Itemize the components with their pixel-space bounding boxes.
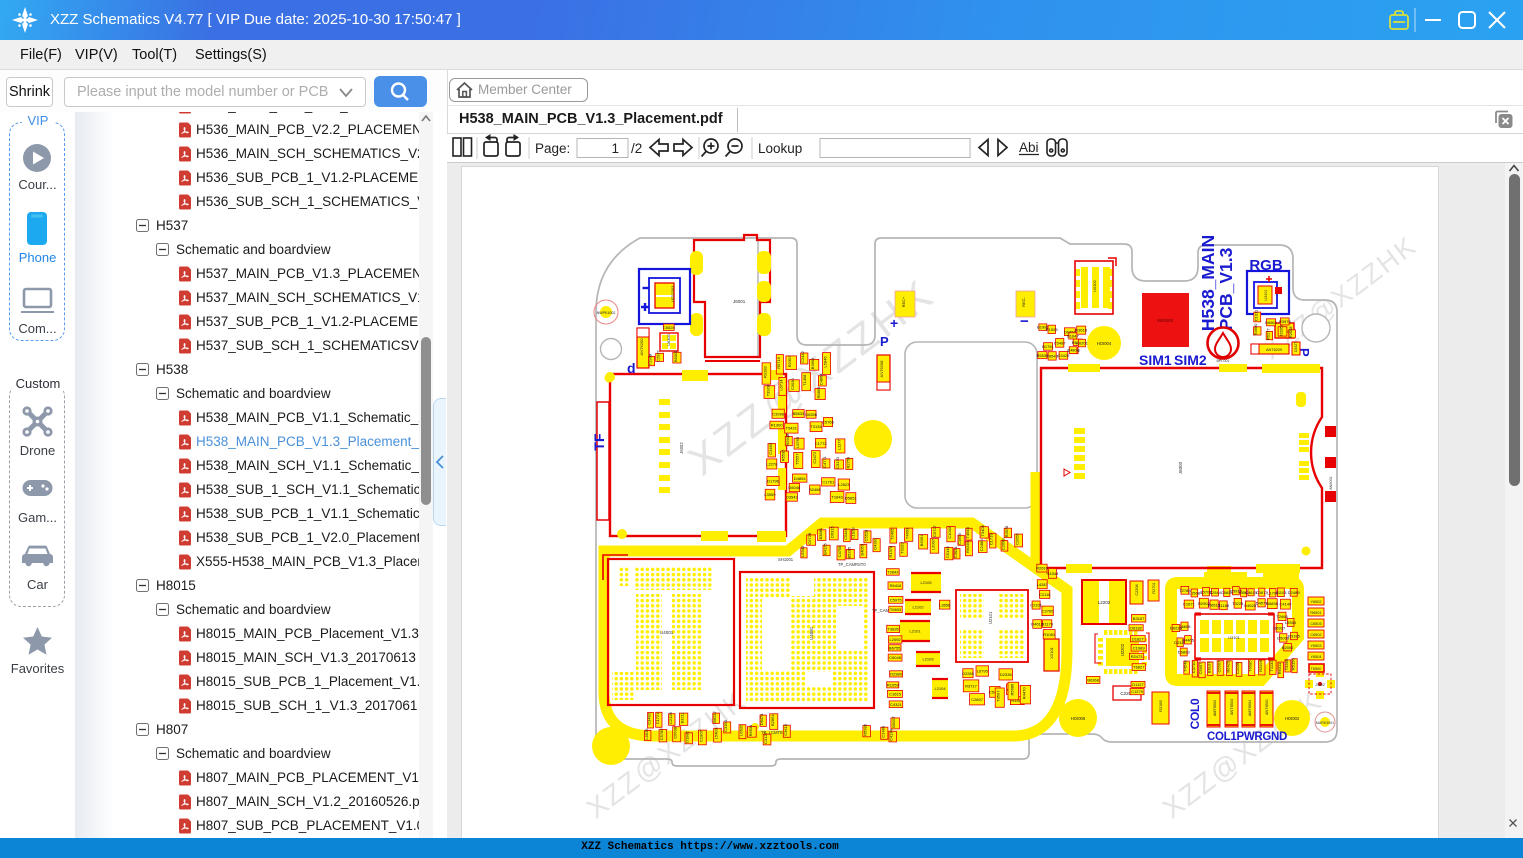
- svg-text:L2102: L2102: [912, 605, 924, 610]
- svg-text:R5277: R5277: [1265, 327, 1270, 340]
- svg-text:B6368: B6368: [1087, 678, 1099, 683]
- svg-text:C6048: C6048: [889, 655, 902, 660]
- svg-text:AN6001: AN6001: [1329, 476, 1333, 490]
- svg-text:R5716: R5716: [776, 356, 781, 369]
- svg-text:T3365: T3365: [1284, 658, 1289, 670]
- svg-text:P: P: [880, 334, 889, 349]
- svg-text:B5285: B5285: [846, 546, 851, 558]
- svg-text:D6048: D6048: [788, 485, 801, 490]
- svg-text:T6603: T6603: [890, 607, 902, 612]
- svg-text:B5057: B5057: [891, 715, 896, 727]
- svg-text:B5833: B5833: [793, 411, 805, 416]
- svg-text:D1796: D1796: [767, 479, 780, 484]
- svg-text:T1643: T1643: [831, 495, 843, 500]
- svg-text:R2616: R2616: [1036, 566, 1049, 571]
- svg-text:R1179: R1179: [1041, 621, 1053, 626]
- svg-text:Page:: Page:: [535, 141, 570, 156]
- svg-text:L6632: L6632: [738, 724, 743, 736]
- svg-text:R1378: R1378: [888, 545, 893, 558]
- svg-text:R1300: R1300: [771, 423, 784, 428]
- svg-text:C1615: C1615: [889, 692, 902, 697]
- svg-text:C2699: C2699: [1000, 538, 1005, 551]
- svg-text:R6425: R6425: [1225, 660, 1230, 673]
- svg-text:R3717: R3717: [965, 683, 978, 688]
- svg-text:T3103: T3103: [900, 542, 905, 554]
- svg-text:D2489: D2489: [1288, 590, 1301, 595]
- svg-text:R2759: R2759: [845, 456, 850, 469]
- svg-text:C6638: C6638: [673, 726, 678, 739]
- svg-text:U2101: U2101: [988, 611, 993, 624]
- svg-text:D6662: D6662: [1265, 320, 1278, 325]
- svg-text:U6305: U6305: [667, 334, 671, 345]
- svg-text:L2092: L2092: [890, 637, 902, 642]
- svg-text:L6795: L6795: [977, 669, 989, 674]
- svg-text:T2664: T2664: [1276, 614, 1288, 619]
- svg-text:R2307: R2307: [787, 355, 792, 368]
- svg-text:ANT6501: ANT6501: [1265, 699, 1269, 715]
- svg-text:T4548: T4548: [1183, 660, 1188, 672]
- svg-text:C3170: C3170: [835, 456, 840, 469]
- svg-text:C3127: C3127: [763, 731, 768, 744]
- svg-text:C3615: C3615: [783, 723, 788, 736]
- svg-text:C1489: C1489: [880, 725, 885, 738]
- svg-text:AMT6504: AMT6504: [1248, 700, 1252, 716]
- svg-text:C5957: C5957: [1198, 662, 1203, 675]
- svg-text:R1505: R1505: [1046, 327, 1059, 332]
- svg-text:T3507: T3507: [996, 690, 1001, 702]
- svg-text:C2101: C2101: [1030, 603, 1043, 608]
- svg-text:C1043: C1043: [947, 526, 952, 539]
- svg-text:D6182: D6182: [1130, 625, 1143, 630]
- svg-text:Y6504: Y6504: [1311, 655, 1322, 659]
- svg-text:D1127: D1127: [1132, 682, 1144, 687]
- svg-text:T3403: T3403: [980, 524, 985, 536]
- svg-text:L1794: L1794: [1267, 590, 1279, 595]
- svg-text:ANT6208: ANT6208: [879, 360, 884, 378]
- svg-text:T2405: T2405: [889, 528, 894, 540]
- svg-text:C6201: C6201: [1076, 341, 1089, 346]
- svg-text:B6836: B6836: [1266, 601, 1278, 606]
- svg-text:U4081: U4081: [809, 626, 814, 640]
- svg-text:R1059: R1059: [887, 682, 900, 687]
- svg-text:C6728: C6728: [807, 532, 812, 545]
- svg-text:R3900: R3900: [1253, 323, 1258, 336]
- svg-text:U5302: U5302: [1092, 279, 1097, 292]
- svg-text:L5554: L5554: [1285, 620, 1297, 625]
- svg-text:B6107: B6107: [1206, 661, 1211, 673]
- svg-text:L2105: L2105: [920, 580, 932, 585]
- svg-text:BPI-001: BPI-001: [1217, 359, 1230, 363]
- svg-text:B3906: B3906: [810, 357, 815, 369]
- svg-text:R4470: R4470: [1021, 687, 1026, 700]
- svg-text:C3492: C3492: [647, 712, 652, 725]
- svg-text:D4854: D4854: [794, 476, 807, 481]
- svg-text:C4610: C4610: [1245, 590, 1258, 595]
- svg-text:T6827: T6827: [1133, 665, 1145, 670]
- svg-text:T3134: T3134: [810, 424, 822, 429]
- svg-text:L5846: L5846: [823, 356, 828, 368]
- svg-text:TF: TF: [591, 433, 607, 451]
- svg-text:L2101: L2101: [909, 629, 921, 634]
- svg-text:R4465: R4465: [1182, 637, 1195, 642]
- svg-text:J6001: J6001: [733, 299, 746, 304]
- svg-text:L6714: L6714: [779, 379, 784, 391]
- svg-text:C4804: C4804: [1067, 348, 1080, 353]
- svg-text:J6002: J6002: [679, 442, 684, 454]
- svg-text:C1721: C1721: [655, 712, 660, 725]
- svg-text:B2854: B2854: [770, 714, 775, 726]
- svg-text:ANT6209: ANT6209: [1266, 348, 1282, 352]
- svg-text:Abi: Abi: [1019, 140, 1039, 155]
- svg-text:B3881: B3881: [818, 527, 823, 539]
- svg-text:Lookup: Lookup: [758, 141, 802, 156]
- svg-text:HOI002: HOI002: [1285, 716, 1300, 721]
- svg-text:C1907: C1907: [698, 729, 703, 742]
- svg-text:L2007: L2007: [930, 538, 935, 550]
- svg-text:R5853: R5853: [816, 386, 821, 399]
- svg-text:T2788: T2788: [1179, 588, 1191, 593]
- svg-text:L5702: L5702: [1200, 589, 1212, 594]
- svg-text:R2701: R2701: [1152, 582, 1156, 593]
- svg-text:D1827: D1827: [1132, 636, 1145, 641]
- svg-text:L2104: L2104: [934, 686, 946, 691]
- svg-text:L1568: L1568: [1189, 591, 1201, 596]
- svg-text:C5567: C5567: [1217, 660, 1222, 673]
- svg-text:L2623: L2623: [838, 482, 850, 487]
- svg-text:C3030: C3030: [790, 378, 795, 391]
- svg-text:B2466: B2466: [809, 487, 821, 492]
- svg-text:TP_CAMRST0: TP_CAMRST0: [838, 562, 866, 567]
- svg-text:C3420: C3420: [1058, 353, 1071, 358]
- svg-text:L4287: L4287: [1037, 582, 1049, 587]
- svg-text:U4001: U4001: [660, 630, 674, 635]
- svg-text:C5427: C5427: [1294, 342, 1298, 352]
- svg-text:C1719: C1719: [989, 533, 994, 546]
- svg-text:J6003: J6003: [1178, 461, 1183, 474]
- svg-text:U3101: U3101: [1228, 635, 1241, 640]
- svg-text:C3472: C3472: [812, 451, 817, 464]
- svg-text:L2278: L2278: [766, 462, 778, 467]
- svg-text:C2480: C2480: [979, 539, 984, 552]
- svg-text:C2657: C2657: [971, 697, 984, 702]
- svg-text:R6346: R6346: [965, 540, 970, 553]
- svg-text:C2116: C2116: [1039, 592, 1051, 597]
- svg-text:R2473: R2473: [1131, 654, 1144, 659]
- svg-text:REC-: REC-: [1021, 296, 1026, 306]
- svg-text:T6500: T6500: [1311, 667, 1322, 671]
- svg-text:C5727: C5727: [932, 524, 937, 537]
- svg-text:C5912: C5912: [1230, 588, 1243, 593]
- svg-text:C1761: C1761: [822, 480, 835, 485]
- svg-text:T5557: T5557: [794, 453, 799, 465]
- svg-text:R6416: R6416: [890, 583, 903, 588]
- svg-text:R2908: R2908: [785, 433, 790, 446]
- svg-text:D6356: D6356: [805, 412, 818, 417]
- svg-text:R4344: R4344: [1047, 571, 1060, 576]
- svg-text:B6755: B6755: [889, 645, 901, 650]
- svg-text:T2843: T2843: [887, 570, 899, 575]
- svg-text:R2285: R2285: [1158, 699, 1163, 712]
- svg-text:COL0: COL0: [1188, 698, 1202, 729]
- svg-text:1: 1: [611, 141, 619, 156]
- svg-text:R3183: R3183: [763, 365, 768, 378]
- svg-text:C6502: C6502: [1310, 633, 1321, 637]
- svg-text:D1647: D1647: [1067, 334, 1080, 339]
- svg-text:L5403: L5403: [714, 727, 719, 739]
- svg-text:HOI005: HOI005: [1071, 716, 1086, 721]
- svg-text:R2058: R2058: [1288, 326, 1293, 339]
- svg-text:T5421: T5421: [786, 426, 798, 431]
- svg-text:C1011: C1011: [1253, 309, 1258, 321]
- svg-text:C5975: C5975: [890, 597, 903, 602]
- svg-text:C5446: C5446: [843, 527, 848, 540]
- svg-text:T3225: T3225: [1232, 601, 1244, 606]
- svg-text:T6585: T6585: [1248, 660, 1253, 672]
- svg-text:B6391: B6391: [919, 534, 924, 546]
- svg-text:ANT6200: ANT6200: [639, 338, 644, 356]
- svg-text:SW1002: SW1002: [1157, 318, 1174, 323]
- svg-text:D1982: D1982: [685, 730, 690, 743]
- svg-text:L1928: L1928: [851, 527, 856, 539]
- svg-text:C2055: C2055: [1015, 532, 1020, 545]
- svg-text:C5785: C5785: [659, 728, 664, 741]
- svg-text:C2128: C2128: [668, 711, 673, 724]
- svg-text:L5769: L5769: [795, 436, 800, 448]
- svg-text:C1772: C1772: [815, 441, 828, 446]
- svg-text:L5443: L5443: [800, 545, 805, 557]
- svg-text:C3034: C3034: [953, 546, 958, 559]
- svg-text:C2442: C2442: [800, 350, 805, 363]
- svg-text:D6474: D6474: [759, 713, 764, 726]
- svg-text:R5156: R5156: [1291, 658, 1296, 671]
- svg-text:H538_MAIN: H538_MAIN: [1198, 235, 1218, 331]
- svg-text:COL1PWRGND: COL1PWRGND: [1207, 731, 1287, 743]
- svg-text:C2765: C2765: [1042, 609, 1055, 614]
- svg-text:L3658: L3658: [939, 602, 951, 607]
- svg-text:R6501: R6501: [1310, 611, 1321, 615]
- svg-text:B4125: B4125: [823, 543, 828, 555]
- svg-text:D2265: D2265: [962, 671, 975, 676]
- svg-text:C3160: C3160: [723, 719, 728, 732]
- svg-text:L6635: L6635: [644, 728, 649, 740]
- svg-text:C5766: C5766: [822, 420, 835, 425]
- svg-text:B3157: B3157: [1133, 616, 1145, 621]
- svg-text:R5530: R5530: [1037, 353, 1050, 358]
- svg-text:C3710: C3710: [1191, 661, 1196, 674]
- svg-text:C2977: C2977: [656, 349, 661, 362]
- svg-text:R3978: R3978: [1279, 319, 1292, 324]
- svg-text:T2968: T2968: [648, 353, 653, 365]
- svg-text:B4056: B4056: [859, 543, 864, 555]
- svg-text:D5039: D5039: [1277, 636, 1290, 641]
- svg-text:C3460: C3460: [768, 442, 773, 455]
- svg-text:D6315: D6315: [830, 525, 835, 538]
- svg-text:D2380: D2380: [890, 672, 903, 677]
- svg-text:T1132: T1132: [1269, 660, 1274, 672]
- svg-text:R6515: R6515: [1208, 602, 1221, 607]
- svg-text:D3542: D3542: [786, 495, 799, 500]
- svg-text:T3826: T3826: [887, 627, 899, 632]
- svg-text:C4771: C4771: [822, 455, 827, 468]
- svg-text:R5995: R5995: [863, 723, 868, 736]
- svg-text:R3978: R3978: [1004, 525, 1009, 538]
- svg-text:C4149: C4149: [1280, 602, 1293, 607]
- svg-text:L3559: L3559: [764, 492, 776, 497]
- svg-text:B1761: B1761: [1042, 344, 1054, 349]
- svg-text:C4134: C4134: [889, 729, 894, 742]
- svg-text:D2336: D2336: [1000, 672, 1013, 677]
- svg-text:D4391: D4391: [873, 537, 878, 550]
- svg-text:R6311: R6311: [1277, 662, 1282, 674]
- svg-text:C2039: C2039: [1235, 661, 1240, 674]
- svg-text:SH1001: SH1001: [778, 557, 794, 562]
- svg-text:C1693: C1693: [957, 532, 962, 545]
- svg-text:D6220: D6220: [1170, 626, 1183, 631]
- svg-text:d: d: [627, 360, 636, 376]
- svg-text:C6503: C6503: [1310, 622, 1321, 626]
- svg-text:Y6502: Y6502: [1311, 600, 1322, 604]
- svg-text:D5651: D5651: [845, 496, 858, 501]
- svg-text:D6937: D6937: [1273, 625, 1286, 630]
- svg-text:U3401: U3401: [1264, 289, 1268, 300]
- svg-text:C5146: C5146: [945, 546, 950, 559]
- svg-text:C1671: C1671: [1183, 602, 1196, 607]
- svg-text:NWPK1002: NWPK1002: [597, 311, 616, 315]
- svg-text:R3615: R3615: [1075, 328, 1088, 333]
- svg-text:R5535: R5535: [781, 449, 786, 462]
- svg-text:B5002: B5002: [673, 350, 678, 362]
- svg-text:R5686: R5686: [1009, 683, 1014, 696]
- svg-text:Y6503: Y6503: [1311, 644, 1322, 648]
- svg-text:R6931: R6931: [748, 724, 753, 737]
- svg-text:L1177: L1177: [836, 438, 841, 450]
- svg-text:D6893: D6893: [1178, 650, 1191, 655]
- svg-text:X2101: X2101: [1049, 646, 1054, 658]
- svg-text:AMT6502: AMT6502: [1213, 700, 1217, 716]
- svg-text:D4612: D4612: [1031, 622, 1044, 627]
- svg-text:R1081: R1081: [1043, 632, 1056, 637]
- svg-text:/2: /2: [631, 141, 642, 156]
- svg-text:C4758: C4758: [837, 545, 842, 558]
- svg-text:C6528: C6528: [663, 325, 676, 330]
- svg-text:ANT6503: ANT6503: [1230, 699, 1234, 715]
- svg-text:T4663: T4663: [905, 527, 910, 539]
- svg-text:SIM1: SIM1: [1139, 352, 1172, 368]
- svg-text:MARK3001: MARK3001: [1316, 721, 1334, 725]
- svg-text:REC+: REC+: [901, 296, 906, 307]
- svg-text:R3185: R3185: [1288, 634, 1301, 639]
- svg-text:R2926: R2926: [1258, 659, 1263, 672]
- svg-text:T1458: T1458: [802, 374, 807, 386]
- svg-text:T3928: T3928: [765, 384, 770, 396]
- svg-text:C1279: C1279: [1131, 689, 1144, 694]
- svg-text:C1989: C1989: [1133, 645, 1146, 650]
- svg-text:B3211: B3211: [680, 711, 685, 723]
- svg-text:L2202: L2202: [1098, 600, 1111, 605]
- svg-text:D4577: D4577: [1256, 601, 1269, 606]
- svg-text:SIM2: SIM2: [1174, 352, 1207, 368]
- svg-text:C4321: C4321: [890, 702, 903, 707]
- svg-text:U2202: U2202: [1120, 643, 1125, 656]
- svg-text:LED2303: LED2303: [670, 285, 675, 302]
- svg-text:C3996: C3996: [772, 411, 785, 416]
- svg-text:L2103: L2103: [922, 657, 934, 662]
- svg-text:C5528: C5528: [864, 529, 869, 542]
- svg-text:HOI004: HOI004: [1097, 341, 1112, 346]
- svg-text:J3402: J3402: [1315, 683, 1325, 687]
- svg-text:C5487: C5487: [1054, 340, 1067, 345]
- svg-text:B2000: B2000: [1282, 645, 1294, 650]
- svg-text:B6217: B6217: [712, 710, 717, 722]
- svg-text:PCB_V1.3: PCB_V1.3: [1216, 247, 1236, 330]
- svg-text:C2208: C2208: [1135, 584, 1139, 595]
- svg-text:T4644: T4644: [965, 526, 970, 538]
